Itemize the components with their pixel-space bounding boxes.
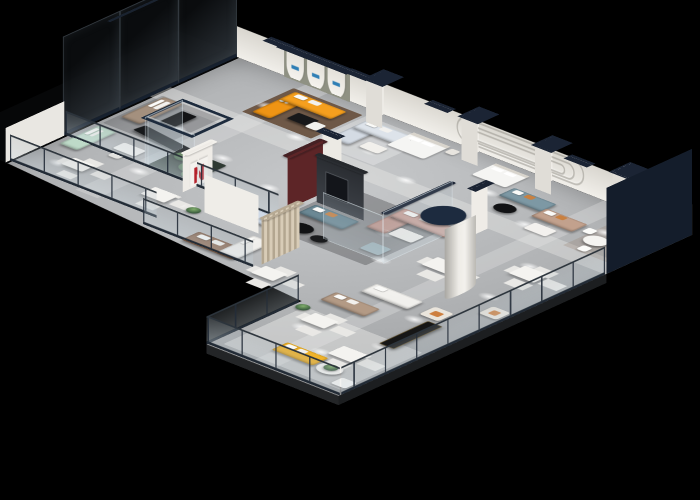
showroom-floorplan-render — [0, 0, 700, 500]
